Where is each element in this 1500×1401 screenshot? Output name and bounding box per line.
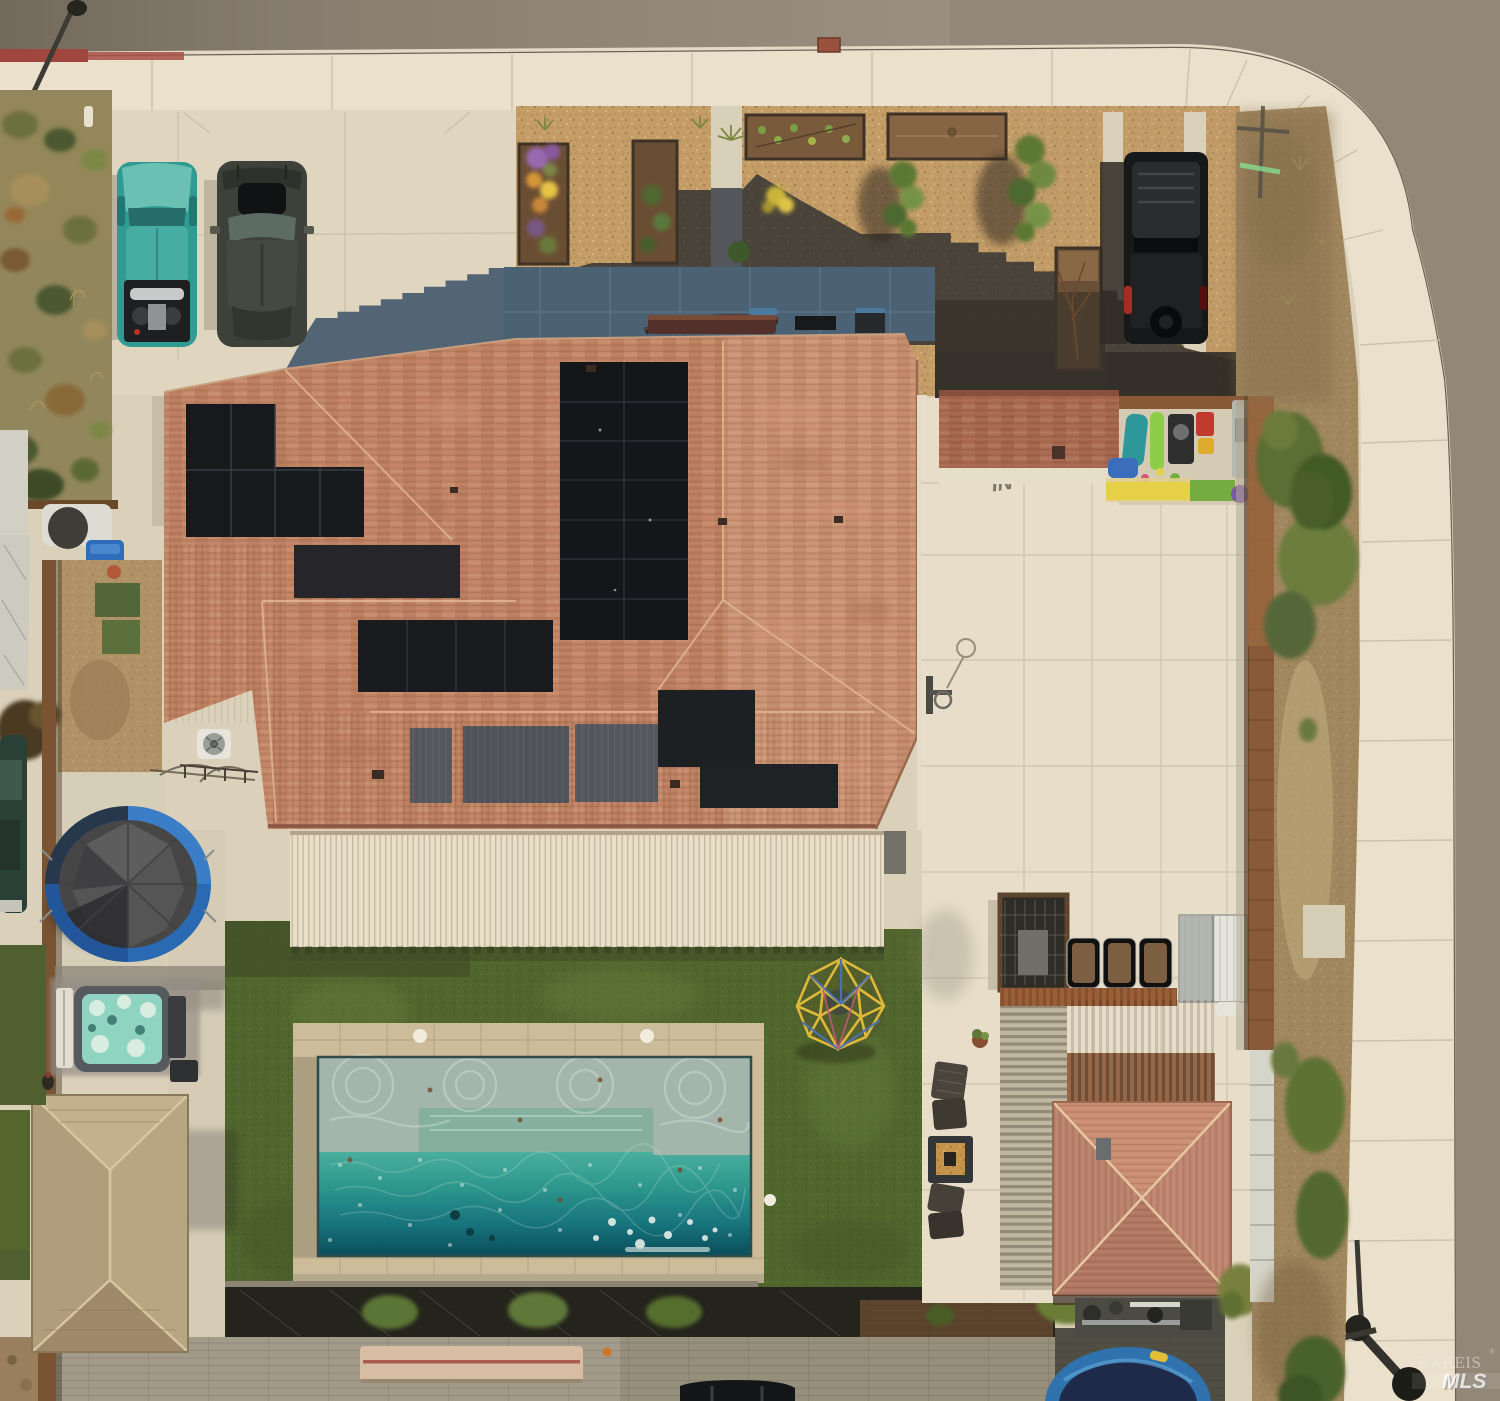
svg-text:®: ® (1489, 1347, 1495, 1356)
svg-text:MLS: MLS (1442, 1370, 1486, 1393)
